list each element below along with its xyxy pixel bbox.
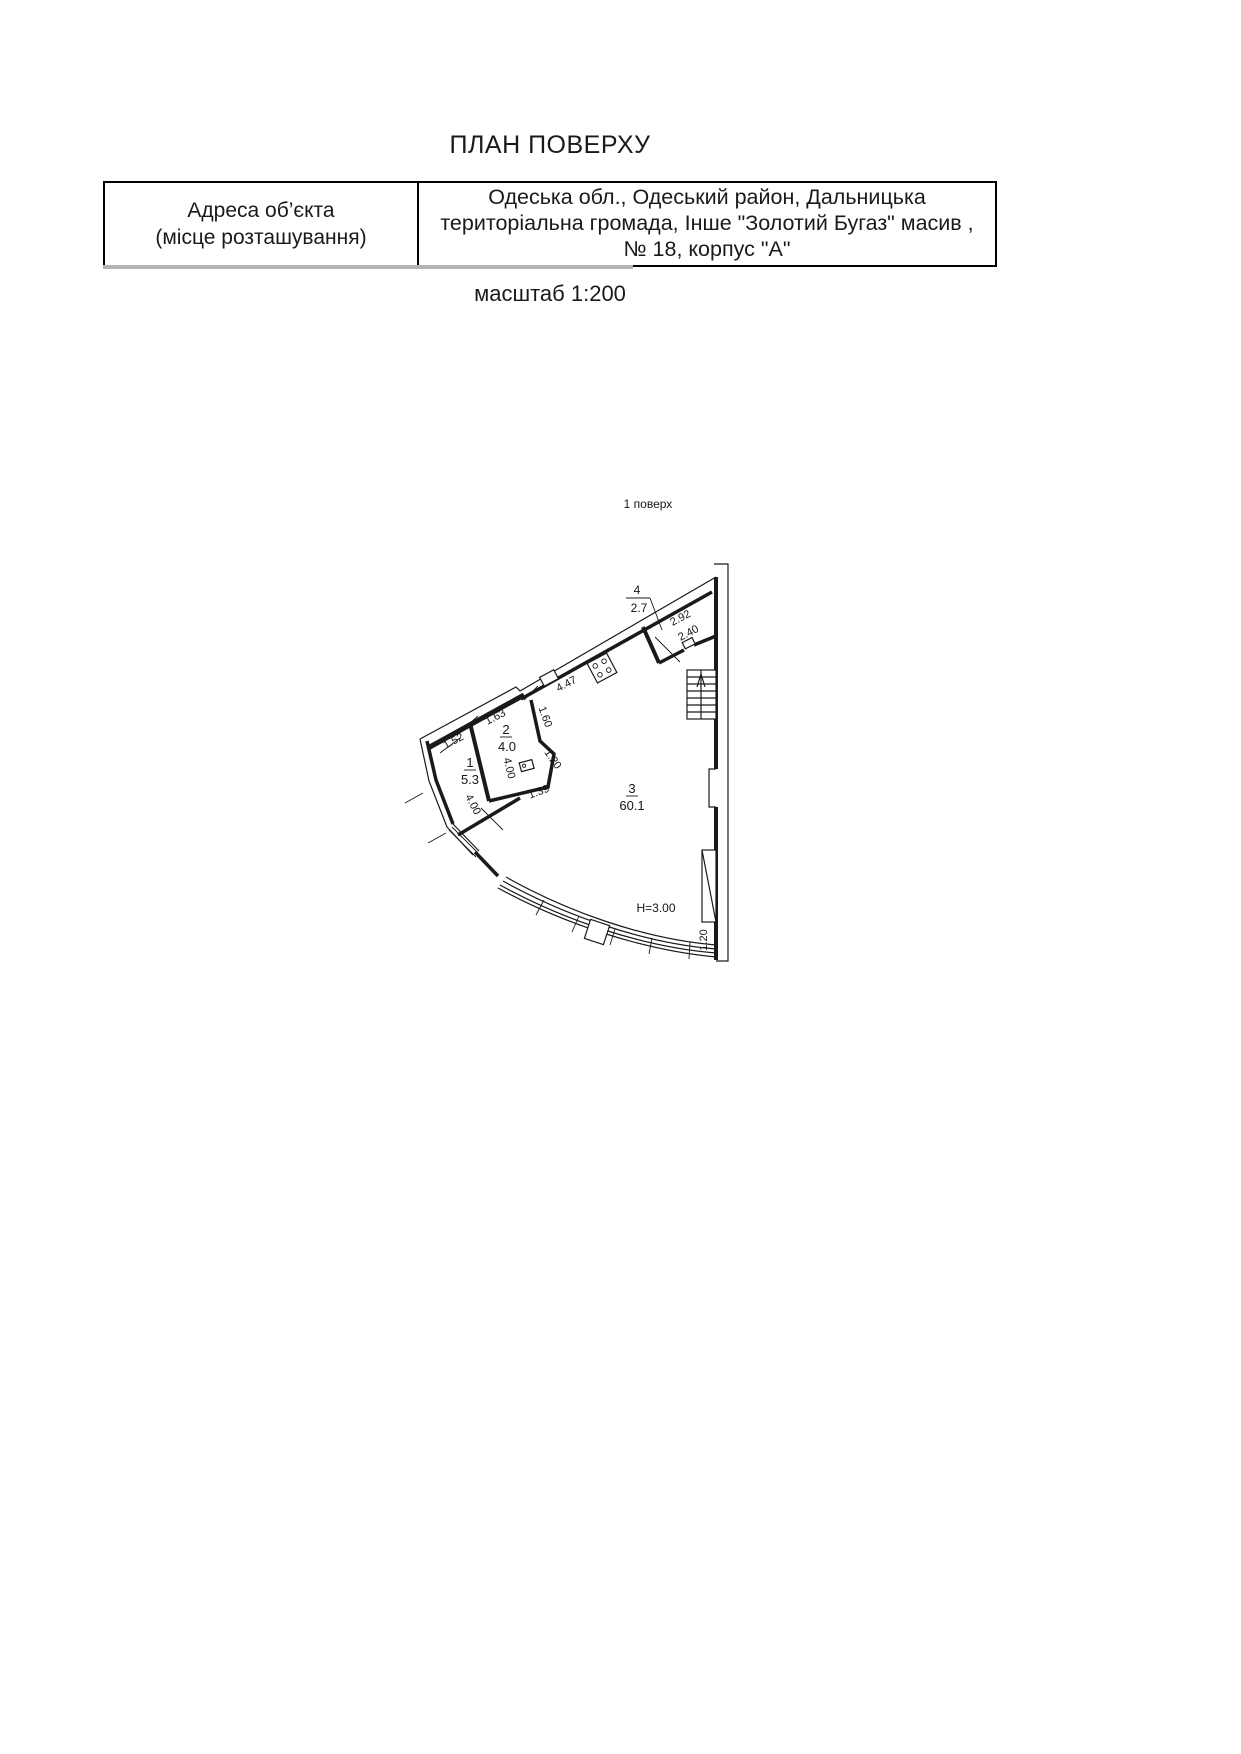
page-title: ПЛАН ПОВЕРХУ bbox=[0, 131, 1100, 160]
ceiling-height-label: H=3.00 bbox=[636, 901, 675, 915]
room-3-label: 3 60.1 bbox=[619, 781, 644, 813]
sink-icon bbox=[519, 760, 534, 772]
facade-window-hatch bbox=[447, 824, 479, 857]
dim-1-20-window: 1.20 bbox=[698, 929, 710, 950]
address-value-cell: Одеська обл., Одеський район, Дальницька… bbox=[419, 183, 995, 265]
pier-icon bbox=[584, 919, 609, 944]
dim-4-00-partition: 4.00 bbox=[500, 756, 517, 780]
address-label-line2: (місце розташування) bbox=[105, 224, 417, 251]
address-label-cell: Адреса об’єкта (місце розташування) bbox=[105, 183, 419, 265]
address-table: Адреса об’єкта (місце розташування) Одес… bbox=[103, 181, 997, 267]
dim-1-20-step: 1.20 bbox=[541, 747, 563, 771]
dim-1-52: 1.52 bbox=[441, 731, 466, 752]
address-label-line1: Адреса об’єкта bbox=[105, 197, 417, 224]
floor-plan-drawing: 1 поверх bbox=[395, 480, 745, 980]
room-4-number: 4 bbox=[634, 583, 641, 597]
scale-label: масштаб 1:200 bbox=[0, 281, 1100, 307]
wall-niche bbox=[709, 769, 716, 807]
curved-glazing bbox=[498, 877, 716, 959]
window-icon bbox=[702, 850, 716, 922]
interior-walls bbox=[458, 627, 716, 835]
room-1-label: 1 5.3 bbox=[461, 755, 479, 787]
room-2-number: 2 bbox=[502, 722, 509, 737]
stairs-icon bbox=[687, 670, 716, 719]
dim-1-39: 1.39 bbox=[527, 783, 551, 802]
room-1-number: 1 bbox=[466, 755, 473, 770]
room-3-number: 3 bbox=[628, 781, 635, 796]
room-1-area: 5.3 bbox=[461, 772, 479, 787]
room-4-area: 2.7 bbox=[631, 601, 648, 615]
dim-4-00-left: 4.00 bbox=[462, 792, 483, 817]
room-2-label: 2 4.0 bbox=[498, 722, 516, 754]
floor-label: 1 поверх bbox=[624, 497, 673, 511]
scan-artifact bbox=[103, 265, 633, 269]
document-page: ПЛАН ПОВЕРХУ Адреса об’єкта (місце розта… bbox=[0, 0, 1241, 1754]
room-2-area: 4.0 bbox=[498, 739, 516, 754]
address-value-text: Одеська обл., Одеський район, Дальницька… bbox=[438, 185, 976, 262]
room-3-area: 60.1 bbox=[619, 798, 644, 813]
